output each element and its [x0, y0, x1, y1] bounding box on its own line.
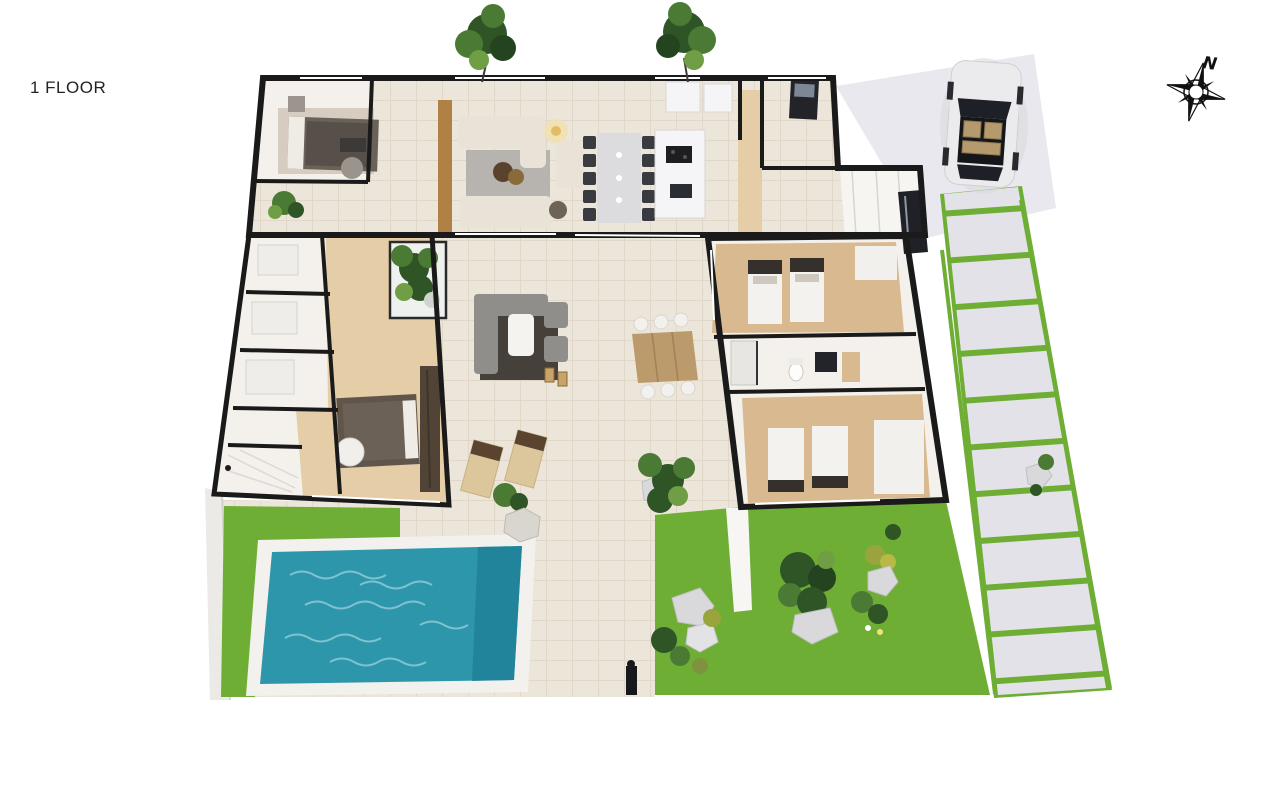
bedroom-round-rug [341, 157, 363, 179]
toilet-tank [789, 358, 803, 365]
tree-top-2 [656, 2, 716, 82]
kitchen-counter-b [704, 84, 732, 112]
outdoor-armchair-2 [544, 336, 568, 362]
sofa-bottom [460, 196, 552, 228]
pool-deep-end [472, 546, 522, 681]
bath-fitting [225, 465, 231, 471]
outdoor-lounge [474, 294, 568, 386]
coffee-table-tray [508, 169, 524, 185]
car [938, 58, 1028, 194]
lantern-2 [558, 372, 567, 386]
twin-bed-1 [748, 260, 782, 324]
sofa-right [556, 140, 584, 188]
floor-lamp [551, 126, 561, 136]
bedroom-dresser [340, 138, 366, 152]
hall-wood-cabinet [438, 100, 452, 232]
living-room [458, 116, 584, 228]
bedroom-twin-lower [742, 394, 930, 503]
lantern-1 [545, 368, 554, 382]
floor-plan-rendering: N [0, 0, 1280, 800]
outdoor-table [632, 331, 698, 383]
car-seat-right [984, 122, 1002, 139]
washroom-tray-1 [258, 245, 298, 275]
outdoor-sofa-left [474, 294, 498, 374]
car-seat-left [963, 121, 981, 138]
vanity [842, 352, 860, 382]
kitchen-island [655, 130, 705, 218]
outdoor-armchair-1 [544, 302, 568, 328]
floor-plan-page: 1 FLOOR [0, 0, 1280, 800]
car-windshield [956, 98, 1011, 120]
twin-bed-3 [768, 428, 804, 492]
cooktop [666, 146, 692, 163]
dining-area [583, 133, 655, 223]
outdoor-coffee-table [508, 314, 534, 356]
washroom-tray-2 [252, 302, 297, 334]
kitchen-sink [670, 184, 692, 198]
entry-closet-top [794, 83, 815, 97]
twin-bed-4 [812, 426, 848, 488]
sofa-chaise [520, 116, 546, 168]
kitchen-counter-a [666, 82, 700, 112]
twin-bed-2 [790, 258, 824, 322]
tree-top-1 [455, 4, 516, 82]
dining-chairs-left [583, 136, 596, 221]
dining-chairs-right [642, 136, 655, 221]
swimming-pool [246, 534, 536, 696]
bedroom-twin-middle [712, 242, 904, 333]
bath-mirror [815, 352, 837, 372]
shower [731, 341, 757, 385]
side-table [549, 201, 567, 219]
washroom-tray-3 [246, 360, 294, 394]
master-round-chair [336, 438, 364, 466]
bedroom-top-left [255, 78, 379, 182]
compass-rose: N [1160, 53, 1233, 128]
toilet [789, 363, 803, 381]
compass-north-label: N [1201, 53, 1218, 75]
closet-lower [874, 420, 924, 494]
closet-white [855, 246, 897, 280]
bedroom-armchair [288, 96, 305, 112]
